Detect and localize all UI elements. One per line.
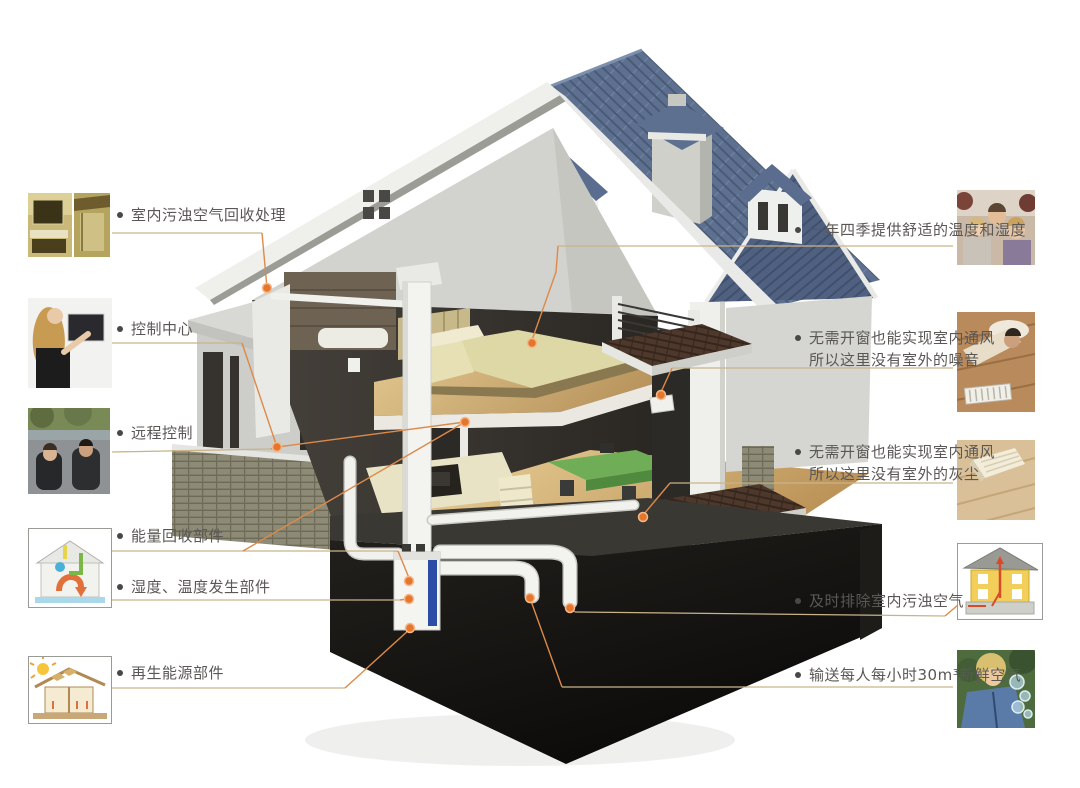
bullet-dot xyxy=(795,672,801,678)
bullet-dot xyxy=(117,430,123,436)
callout-label: 控制中心 xyxy=(131,318,193,340)
callout-label: 一年四季提供舒适的温度和湿度 xyxy=(809,219,1026,241)
callout-comfort-all-seasons: 一年四季提供舒适的温度和湿度 xyxy=(795,219,1026,241)
callout-energy-recovery: 能量回收部件 xyxy=(117,525,224,547)
callout-renewable-energy: 再生能源部件 xyxy=(117,662,224,684)
exhaust-air-house-diagram xyxy=(957,543,1043,620)
callout-no-dust: 无需开窗也能实现室内通风 所以这里没有室外的灰尘 xyxy=(795,441,995,485)
callout-humidity-temperature: 湿度、温度发生部件 xyxy=(117,576,271,598)
callout-label-line2: 所以这里没有室外的灰尘 xyxy=(809,463,995,485)
bullet-dot xyxy=(117,212,123,218)
callout-remote-control: 远程控制 xyxy=(117,422,193,444)
callout-label: 再生能源部件 xyxy=(131,662,224,684)
callout-control-center: 控制中心 xyxy=(117,318,193,340)
callout-label: 能量回收部件 xyxy=(131,525,224,547)
callout-label-line1: 无需开窗也能实现室内通风 xyxy=(809,327,995,349)
remote-control-in-car-photo xyxy=(28,408,110,494)
callout-label: 输送每人每小时30m³新鲜空气 xyxy=(809,664,1021,686)
bullet-dot xyxy=(117,533,123,539)
infographic-canvas: 室内污浊空气回收处理 控制中心 远程控制 能量回收部件 湿度、温度发生部件 再生… xyxy=(0,0,1080,788)
bullet-dot xyxy=(117,670,123,676)
callout-indoor-air-recovery: 室内污浊空气回收处理 xyxy=(117,204,286,226)
bullet-dot xyxy=(117,326,123,332)
callout-label-line1: 无需开窗也能实现室内通风 xyxy=(809,441,995,463)
bathroom-interior-photo xyxy=(28,193,110,257)
energy-recovery-diagram xyxy=(28,528,112,608)
callout-fresh-air-volume: 输送每人每小时30m³新鲜空气 xyxy=(795,664,1021,686)
callout-label: 及时排除室内污浊空气 xyxy=(809,590,964,612)
bullet-dot xyxy=(795,227,801,233)
callout-label: 室内污浊空气回收处理 xyxy=(131,204,286,226)
woman-touchscreen-photo xyxy=(28,298,112,388)
callout-label: 湿度、温度发生部件 xyxy=(131,576,271,598)
callout-label-line2: 所以这里没有室外的噪音 xyxy=(809,349,995,371)
bullet-dot xyxy=(795,335,801,341)
callout-no-noise: 无需开窗也能实现室内通风 所以这里没有室外的噪音 xyxy=(795,327,995,371)
bullet-dot xyxy=(795,598,801,604)
bullet-dot xyxy=(795,449,801,455)
callout-exhaust-dirty-air: 及时排除室内污浊空气 xyxy=(795,590,964,612)
child-blowing-bubbles-photo xyxy=(957,650,1035,728)
bullet-dot xyxy=(117,584,123,590)
renewable-energy-house-diagram xyxy=(28,656,112,724)
callout-label: 远程控制 xyxy=(131,422,193,444)
